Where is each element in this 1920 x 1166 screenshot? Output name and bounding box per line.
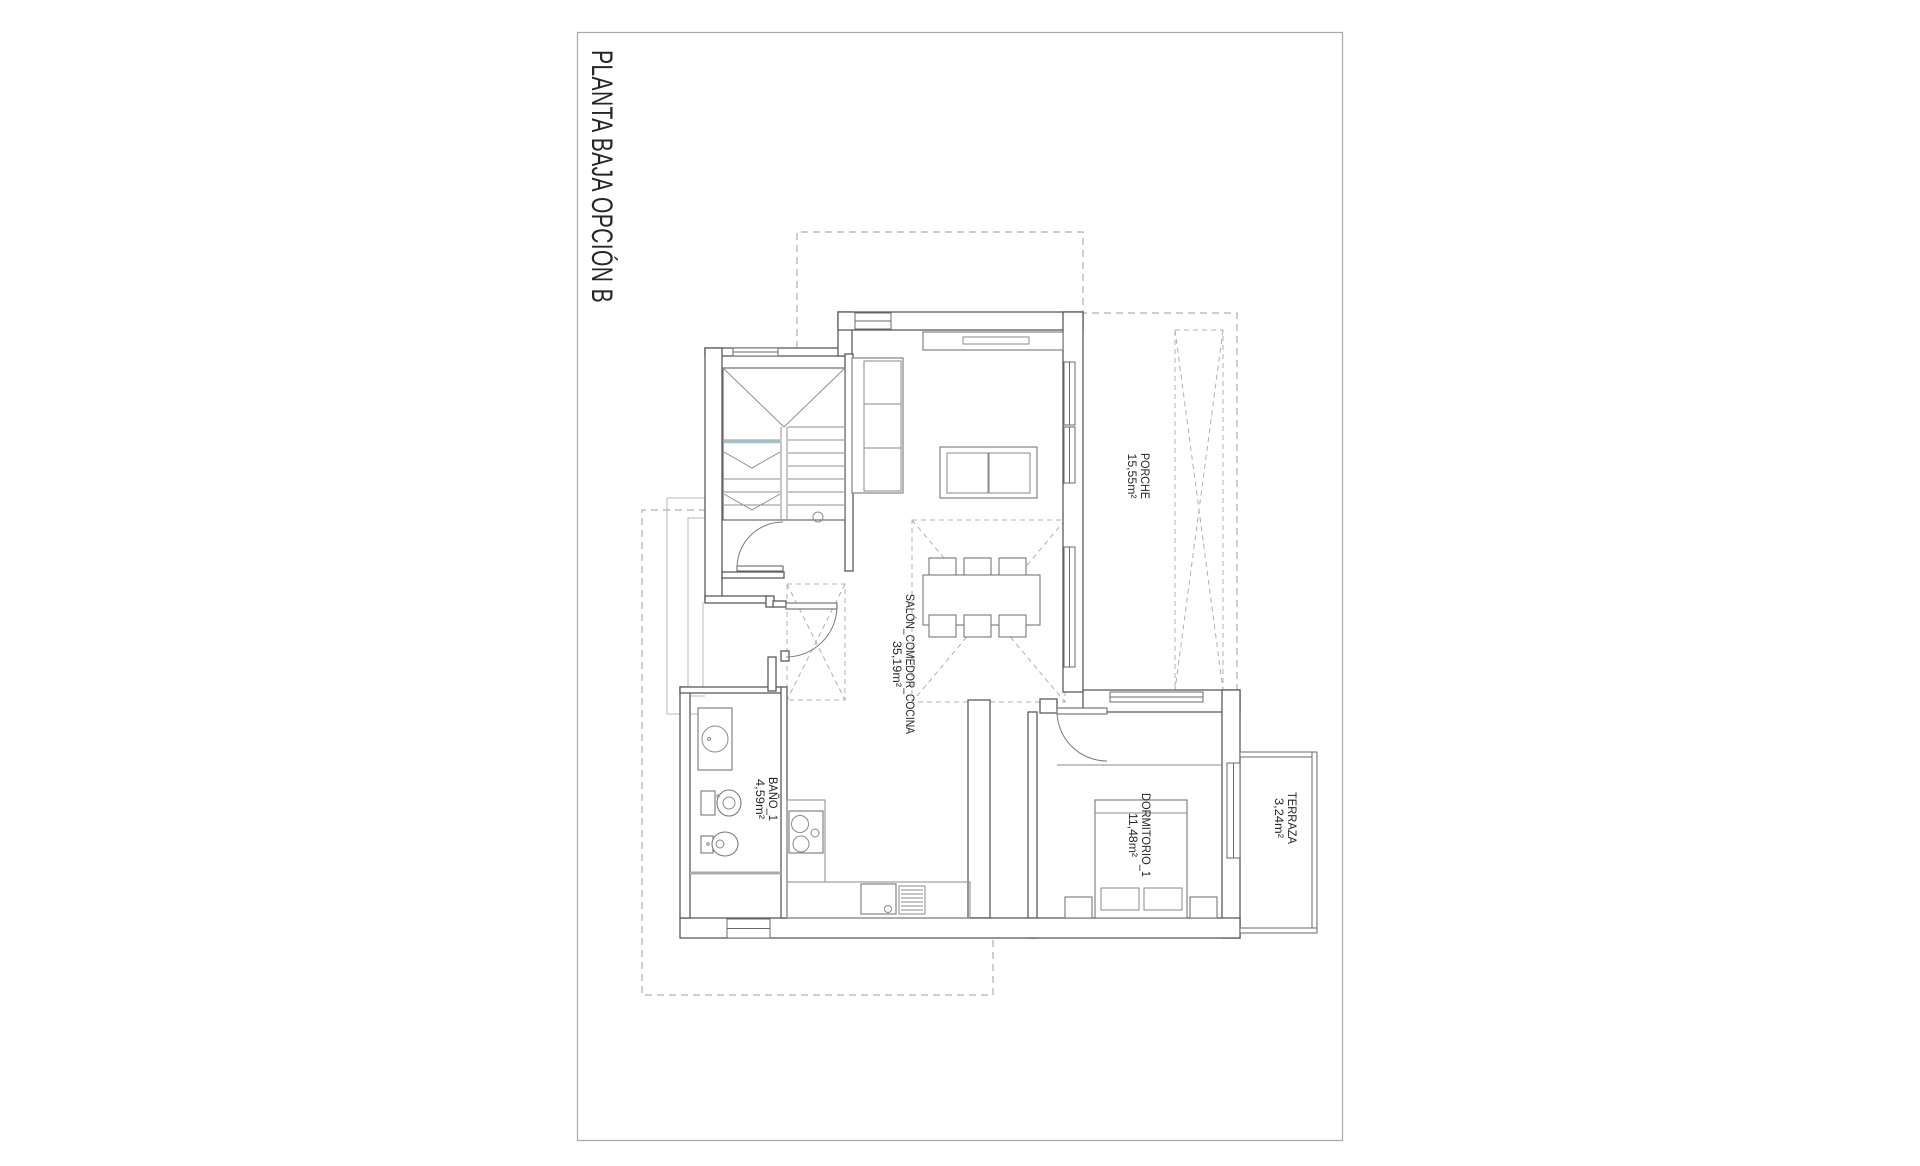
living-north-window — [855, 313, 891, 329]
hall-north-window — [733, 348, 778, 356]
tv-cabinet — [923, 332, 1063, 350]
vestibule-wall — [722, 572, 784, 578]
dining-set — [923, 558, 1040, 637]
entry-sill-wall — [773, 601, 786, 607]
plan-title: PLANTA BAJA OPCIÓN B — [585, 50, 618, 303]
hall-west-wall — [705, 348, 722, 602]
dining-chair — [999, 615, 1026, 637]
label-porche-name: PORCHE — [1138, 453, 1152, 499]
kitchen-east-wall — [968, 700, 990, 918]
entry-landing-block — [781, 651, 789, 661]
living-east-window-2 — [1064, 427, 1075, 483]
bidet — [701, 832, 738, 856]
label-dormitorio-area: 11,48m² — [1126, 813, 1140, 857]
dining-chair — [929, 615, 956, 637]
bath-kitchen-divider — [781, 687, 787, 918]
label-bano-area: 4,59m² — [753, 779, 767, 819]
label-terraza-area: 3,24m² — [1272, 798, 1286, 838]
nightstand — [1190, 897, 1217, 918]
label-salon-name: SALÓN_COMEDOR_COCINA — [903, 594, 918, 734]
staircase — [723, 368, 845, 522]
bath-west-wall — [680, 687, 690, 918]
living-east-window-1 — [1064, 362, 1075, 425]
vestibule-south-wall — [705, 596, 768, 603]
bedroom-door-pier — [1040, 699, 1057, 713]
living-east-window-3 — [1064, 547, 1075, 667]
cooktop — [789, 811, 823, 853]
sofa — [852, 358, 903, 493]
label-porche-area: 15,55m² — [1125, 454, 1139, 499]
coffee-table — [940, 447, 1037, 498]
bedroom-west-wall — [1028, 712, 1037, 938]
dining-chair — [964, 615, 991, 637]
bedroom-north-window — [1110, 692, 1203, 702]
label-bano-name: BAÑO_1 — [766, 777, 780, 821]
bedroom-terrace-window — [1227, 763, 1240, 858]
bath-sink — [698, 708, 732, 770]
bath-south-window — [727, 919, 770, 938]
nightstand — [1065, 897, 1092, 918]
label-terraza-name: TERRAZA — [1285, 792, 1299, 844]
label-salon-area: 35,19m² — [890, 641, 904, 687]
floor-plan-drawing: PLANTA BAJA OPCIÓN B PORCHE 15,55m² SALÓ… — [0, 0, 1920, 1166]
label-dormitorio-name: DORMITORIO_1 — [1139, 793, 1153, 877]
toilet — [701, 790, 741, 816]
entry-south-return-wall — [768, 657, 776, 691]
floor-plan-page: PLANTA BAJA OPCIÓN B PORCHE 15,55m² SALÓ… — [0, 0, 1920, 1166]
